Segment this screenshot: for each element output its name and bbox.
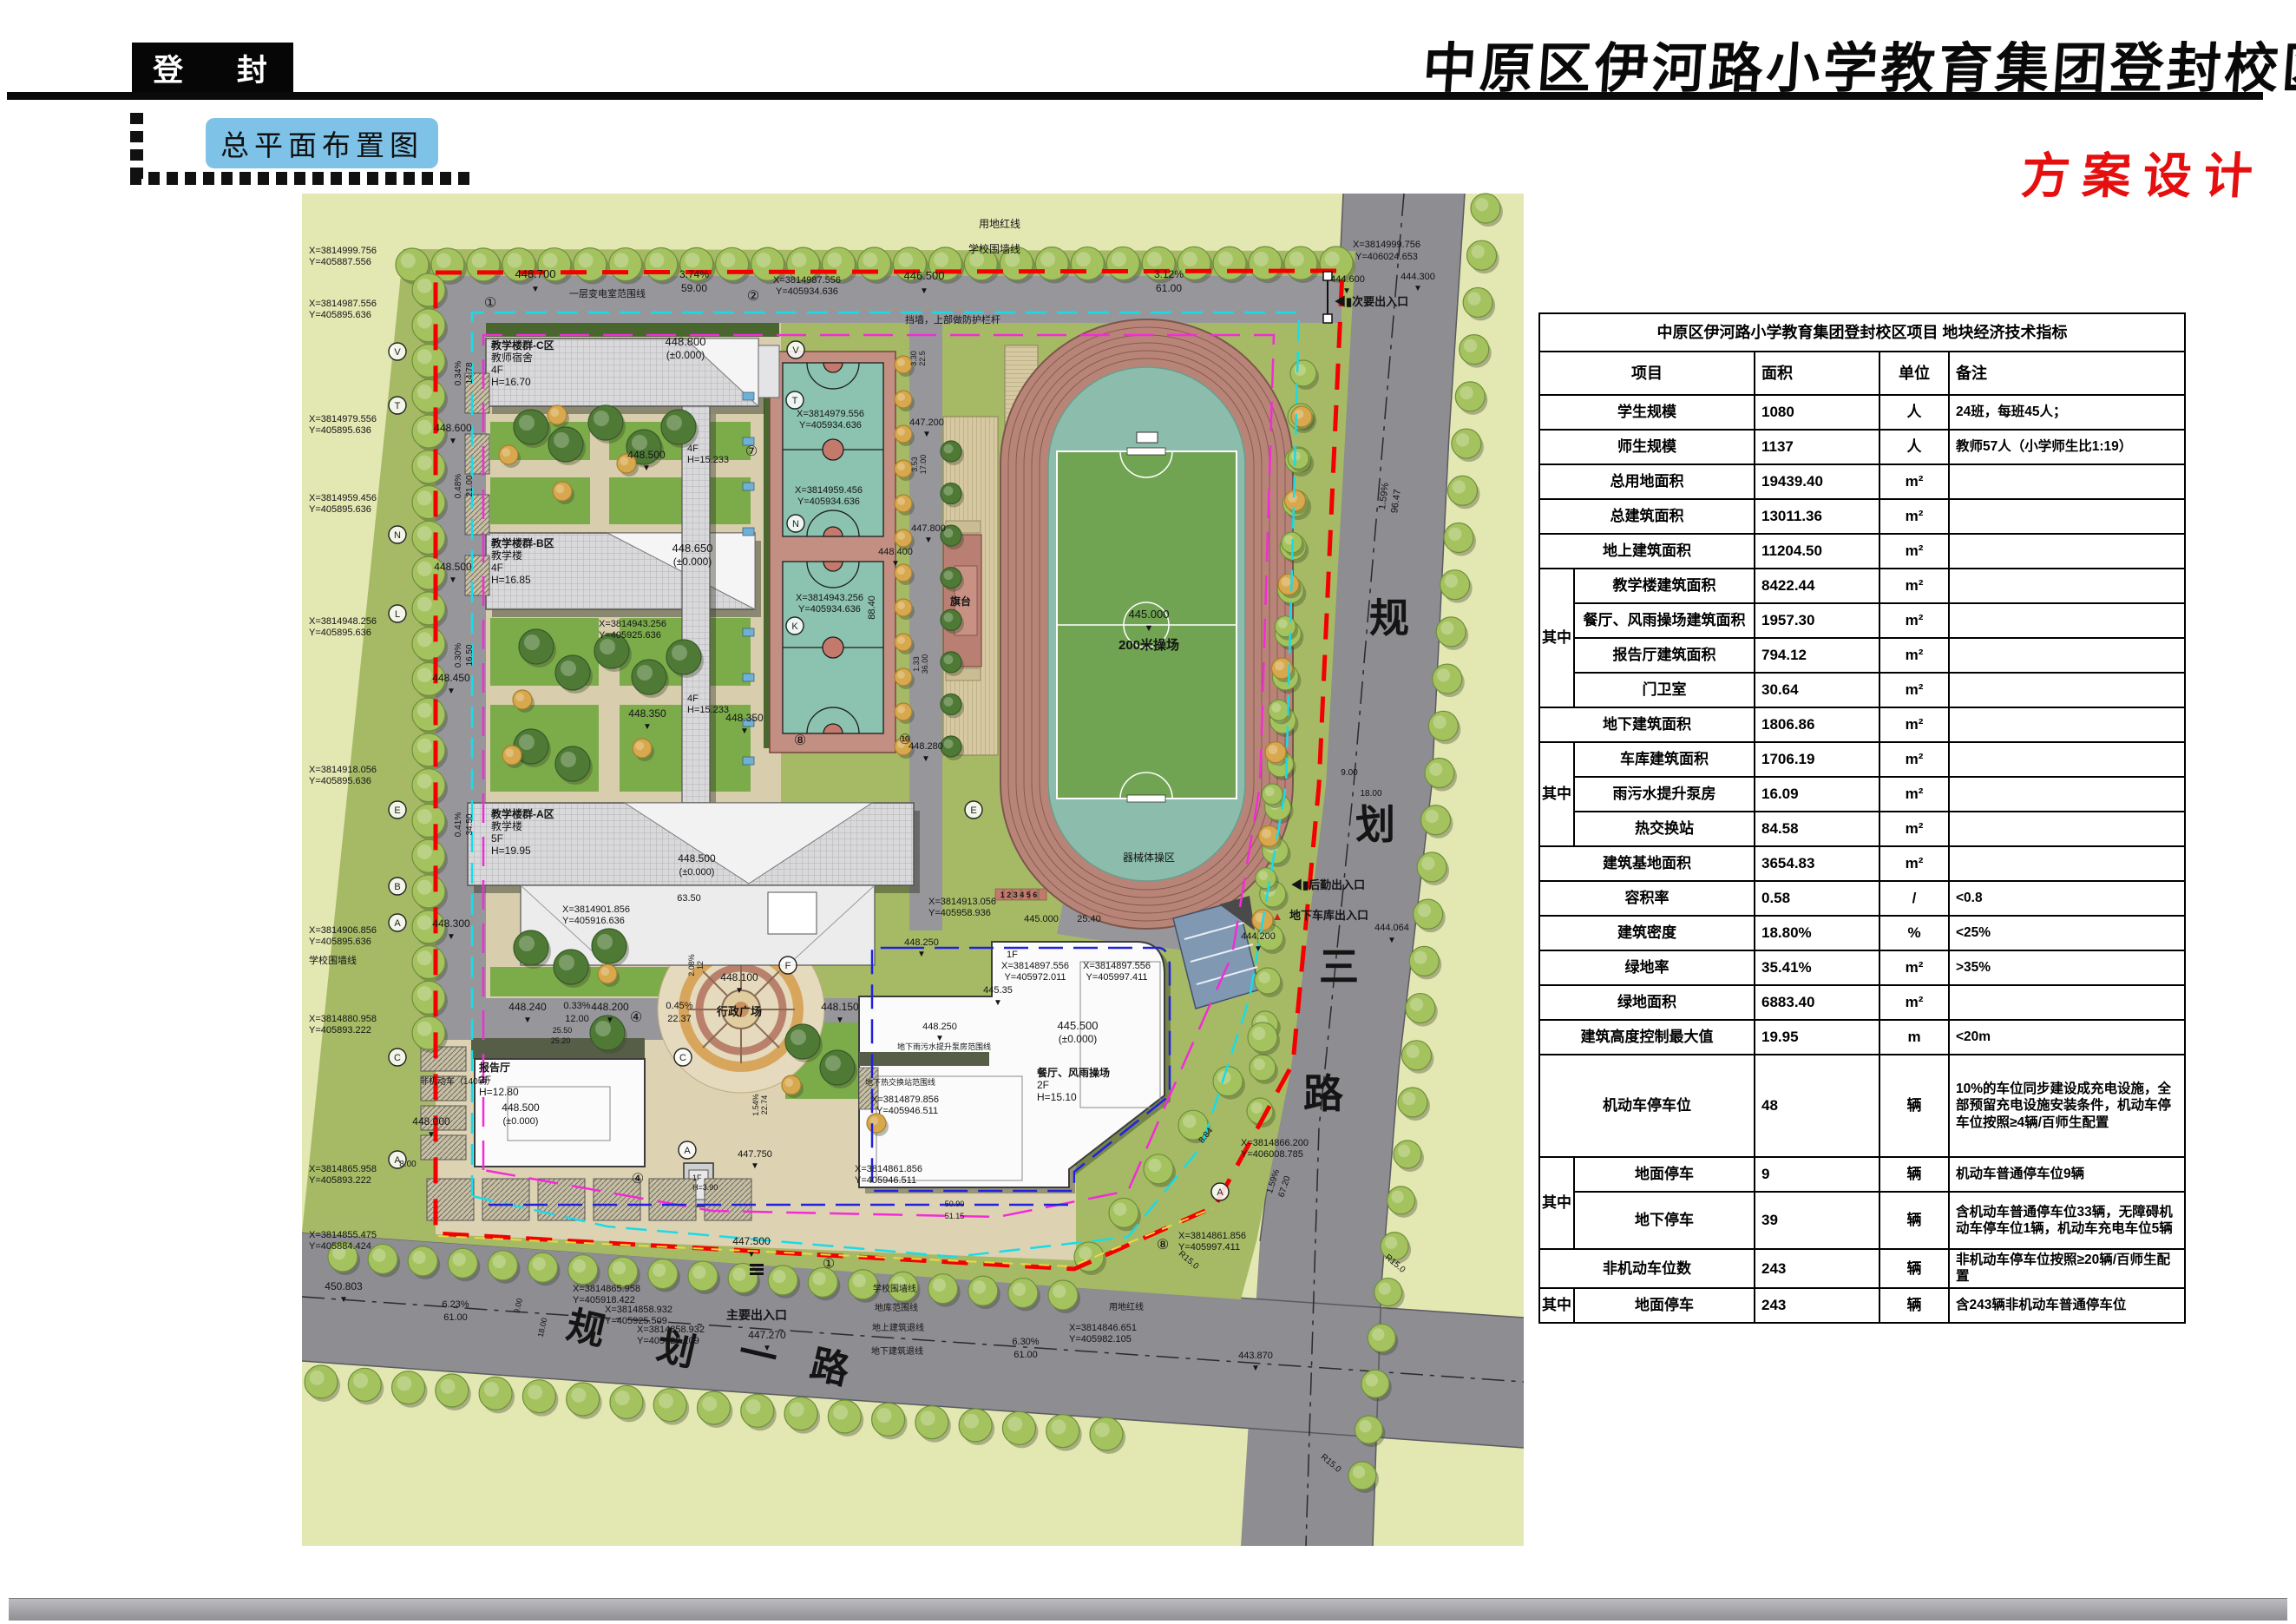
remark-cell: [1949, 707, 2185, 742]
table-row: 建筑基地面积3654.83m²: [1539, 846, 2185, 881]
table-row: 容积率0.58/<0.8: [1539, 881, 2185, 916]
plan-annotation: Y=405997.411: [1086, 972, 1147, 983]
value-cell: 84.58: [1755, 812, 1879, 846]
plan-annotation: X=3814987.556: [773, 275, 841, 286]
plan-annotation: 教学楼群-A区: [490, 807, 554, 820]
value-cell: 19439.40: [1755, 464, 1879, 499]
value-cell: 16.09: [1755, 777, 1879, 812]
plan-annotation: X=3814943.256: [796, 593, 863, 603]
table-row: 绿地率35.41%m²>35%: [1539, 950, 2185, 985]
unit-cell: m²: [1879, 569, 1949, 603]
plan-annotation: 448.150: [821, 1001, 859, 1013]
grid-bubble-label: E: [970, 805, 976, 816]
plan-annotation: ▼: [751, 1161, 759, 1171]
plan-annotation: X=3814979.556: [797, 409, 864, 419]
value-cell: 1080: [1755, 395, 1879, 430]
plan-annotation: 3.12%: [1154, 268, 1184, 280]
plan-annotation: 445.000: [1129, 608, 1170, 621]
plan-annotation: 448.350: [628, 707, 666, 720]
plan-annotation: 0.30%: [454, 643, 463, 667]
item-cell: 机动车停车位: [1539, 1055, 1755, 1157]
unit-cell: m²: [1879, 464, 1949, 499]
item-cell: 地下建筑面积: [1539, 707, 1755, 742]
plan-annotation: 448.600: [434, 422, 472, 434]
footer-shadow-bar: [9, 1598, 2287, 1621]
plan-annotation: 25.40: [1077, 914, 1101, 924]
plan-annotation: ▼: [747, 1250, 756, 1259]
table-row: 绿地面积6883.40m²: [1539, 985, 2185, 1020]
plan-annotation: 448.240: [508, 1001, 547, 1013]
plan-annotation: X=3814999.756: [309, 246, 377, 256]
plan-annotation: ▼: [642, 464, 651, 473]
plan-annotation: ▼: [531, 285, 540, 294]
plan-annotation: ▼: [1414, 284, 1422, 293]
plan-annotation: ④: [632, 1172, 644, 1187]
item-cell: 报告厅建筑面积: [1574, 638, 1755, 673]
plan-annotation: 餐厅、风雨操场: [1037, 1066, 1110, 1079]
remark-cell: [1949, 742, 2185, 777]
remark-cell: [1949, 812, 2185, 846]
plan-annotation: Y=405997.411: [1178, 1242, 1240, 1253]
item-cell: 总用地面积: [1539, 464, 1755, 499]
plan-annotation: X=3814906.856: [309, 925, 377, 936]
item-cell: 门卫室: [1574, 673, 1755, 707]
plan-annotation: 规: [1369, 595, 1409, 641]
table-row: 其中地面停车243辆含243辆非机动车普通停车位: [1539, 1288, 2185, 1323]
item-cell: 地上建筑面积: [1539, 534, 1755, 569]
table-row: 报告厅建筑面积794.12m²: [1539, 638, 2185, 673]
city-tab-label: 登 封: [153, 46, 290, 90]
plan-annotation: 448.100: [720, 971, 758, 983]
unit-cell: m²: [1879, 812, 1949, 846]
item-cell: 学生规模: [1539, 395, 1755, 430]
plan-annotation: 445.500: [1058, 1019, 1099, 1032]
unit-cell: /: [1879, 881, 1949, 916]
plan-annotation: ▼: [447, 932, 456, 942]
plan-annotation: H=16.85: [491, 574, 531, 586]
plan-annotation: 444.600: [1330, 274, 1365, 285]
plan-annotation: 教学楼: [491, 549, 522, 562]
main-gate: [750, 1264, 764, 1275]
value-cell: 6883.40: [1755, 985, 1879, 1020]
plan-annotation: 1 2 3 4 5 6: [1000, 891, 1038, 899]
unit-cell: m²: [1879, 707, 1949, 742]
grid-bubble-label: A: [394, 918, 401, 929]
plan-annotation: X=3814861.856: [855, 1164, 922, 1174]
plan-annotation: 3.30: [909, 351, 918, 366]
grid-bubble-label: A: [1217, 1187, 1223, 1198]
plan-annotation: X=3814943.256: [599, 619, 666, 629]
plan-annotation: 地库范围线: [875, 1302, 918, 1313]
plan-annotation: Y=405958.936: [928, 908, 991, 918]
grid-bubble-label: A: [684, 1146, 691, 1156]
plan-annotation: 444.064: [1374, 923, 1409, 933]
plan-annotation: H=15.10: [1037, 1091, 1077, 1103]
table-row: 餐厅、风雨操场建筑面积1957.30m²: [1539, 603, 2185, 638]
item-cell: 绿地率: [1539, 950, 1755, 985]
group-cell: 其中: [1539, 1157, 1574, 1249]
plan-annotation: Y=405893.222: [309, 1025, 371, 1036]
plan-annotation: 448.280: [909, 741, 943, 752]
plan-annotation: ②: [747, 289, 759, 304]
plan-annotation: 5F: [491, 832, 503, 845]
plan-annotation: 444.200: [1241, 931, 1276, 942]
item-cell: 餐厅、风雨操场建筑面积: [1574, 603, 1755, 638]
plan-annotation: 一层变电室范围线: [569, 287, 646, 299]
value-cell: 3654.83: [1755, 846, 1879, 881]
item-cell: 容积率: [1539, 881, 1755, 916]
table-row: 雨污水提升泵房16.09m²: [1539, 777, 2185, 812]
plan-annotation: 443.870: [1238, 1351, 1273, 1361]
plan-annotation: X=3814918.056: [309, 765, 377, 775]
plan-annotation: 21.00: [465, 475, 475, 496]
unit-cell: m: [1879, 1020, 1949, 1055]
plan-annotation: 16.50: [465, 644, 475, 666]
plan-annotation: H=16.70: [491, 376, 531, 388]
plan-annotation: 25.50: [553, 1026, 573, 1035]
value-cell: 0.58: [1755, 881, 1879, 916]
plan-annotation: 22.37: [667, 1014, 692, 1024]
plan-annotation: 挡墙，上部做防护栏杆: [905, 313, 1000, 325]
plan-annotation: 51.15: [945, 1212, 965, 1220]
value-cell: 243: [1755, 1288, 1879, 1323]
plan-annotation: ▼: [891, 559, 900, 569]
table-title: 中原区伊河路小学教育集团登封校区项目 地块经济技术指标: [1539, 313, 2185, 352]
plan-annotation: 9.00: [1341, 768, 1358, 778]
remark-cell: <25%: [1949, 916, 2185, 950]
plan-annotation: 34.50: [465, 813, 475, 835]
plan-annotation: 448.800: [666, 335, 706, 348]
remark-cell: [1949, 603, 2185, 638]
plan-annotation: X=3814897.556: [1001, 961, 1069, 971]
table-row: 建筑密度18.80%%<25%: [1539, 916, 2185, 950]
plan-title-label: 总平面布置图: [220, 122, 423, 164]
unit-cell: m²: [1879, 603, 1949, 638]
group-cell: 其中: [1539, 569, 1574, 707]
value-cell: 19.95: [1755, 1020, 1879, 1055]
plan-annotation: 18.00: [1360, 789, 1381, 799]
plan-annotation: 3.53: [910, 457, 919, 472]
plan-annotation: ▲: [1272, 910, 1283, 923]
plan-annotation: ▼: [740, 727, 749, 736]
plan-annotation: Y=406024.653: [1355, 252, 1418, 262]
plan-annotation: X=3814866.200: [1241, 1138, 1309, 1148]
grid-bubble-label: F: [785, 961, 791, 971]
plan-annotation: X=3814987.556: [309, 299, 377, 309]
grid-bubble-label: E: [394, 805, 400, 816]
plan-annotation: H=12.80: [479, 1086, 519, 1098]
plan-annotation: X=3814879.856: [871, 1095, 939, 1105]
plan-annotation: 0.41%: [454, 812, 463, 837]
table-row: 建筑高度控制最大值19.95m<20m: [1539, 1020, 2185, 1055]
plan-annotation: 448.650: [672, 542, 713, 555]
plan-annotation: 划: [1355, 802, 1395, 847]
unit-cell: m²: [1879, 985, 1949, 1020]
plan-annotation: 0.48%: [454, 474, 463, 498]
plan-annotation: 0.45%: [666, 1001, 692, 1011]
remark-cell: <20m: [1949, 1020, 2185, 1055]
plan-annotation: H=3.90: [692, 1183, 718, 1192]
plan-annotation: 8.00: [399, 1160, 417, 1169]
item-cell: 地面停车: [1574, 1288, 1755, 1323]
unit-cell: 人: [1879, 430, 1949, 464]
plan-annotation: 448.500: [502, 1101, 540, 1114]
plan-annotation: ④: [630, 1010, 642, 1025]
plan-annotation: 63.50: [677, 893, 701, 904]
plan-annotation: Y=405916.636: [562, 916, 625, 926]
table-row: 门卫室30.64m²: [1539, 673, 2185, 707]
plan-annotation: X=3814897.556: [1083, 961, 1151, 971]
table-row: 热交换站84.58m²: [1539, 812, 2185, 846]
plan-annotation: 用地红线: [979, 217, 1020, 230]
plan-annotation: 路: [1303, 1071, 1344, 1116]
item-cell: 热交换站: [1574, 812, 1755, 846]
grid-bubble-label: L: [395, 609, 400, 620]
plan-annotation: 地上建筑退线: [872, 1322, 924, 1333]
plan-annotation: Y=405934.636: [798, 604, 861, 615]
plan-annotation: 59.00: [681, 282, 707, 294]
unit-cell: %: [1879, 916, 1949, 950]
unit-cell: 辆: [1879, 1249, 1949, 1288]
plan-annotation: Y=405895.636: [309, 504, 371, 515]
unit-cell: 辆: [1879, 1192, 1949, 1249]
plan-annotation: 地下雨污水提升泵房范围线: [897, 1042, 991, 1051]
plan-annotation: X=3814979.556: [309, 414, 377, 424]
plan-annotation: 448.250: [904, 937, 939, 948]
plan-annotation: ①: [823, 1257, 835, 1272]
plan-annotation: Y=405895.636: [309, 937, 371, 947]
value-cell: 1806.86: [1755, 707, 1879, 742]
plan-annotation: 0.33%: [563, 1001, 590, 1011]
plan-annotation: (±0.000): [503, 1116, 539, 1127]
plan-annotation: 地下热交换站范围线: [865, 1077, 935, 1087]
group-cell: 其中: [1539, 1288, 1574, 1323]
plan-annotation: 50.90: [945, 1200, 965, 1208]
unit-cell: 辆: [1879, 1157, 1949, 1192]
remark-cell: [1949, 777, 2185, 812]
value-cell: 8422.44: [1755, 569, 1879, 603]
remark-cell: <0.8: [1949, 881, 2185, 916]
plan-annotation: 行政广场: [716, 1005, 762, 1018]
plan-annotation: 446.500: [904, 269, 945, 282]
value-cell: 1137: [1755, 430, 1879, 464]
remark-cell: [1949, 464, 2185, 499]
table-row: 总建筑面积13011.36m²: [1539, 499, 2185, 534]
lecture-hall: [471, 1038, 645, 1167]
plan-annotation: ▼: [922, 430, 931, 439]
remark-cell: 24班，每班45人；: [1949, 395, 2185, 430]
city-tab: 登 封: [132, 43, 293, 93]
plan-annotation: 6.30%: [1012, 1337, 1039, 1347]
plan-annotation: Y=405895.636: [309, 628, 371, 638]
plan-annotation: Y=405925.636: [599, 630, 661, 641]
grid-bubble-label: C: [394, 1053, 401, 1063]
value-cell: 48: [1755, 1055, 1879, 1157]
value-cell: 1706.19: [1755, 742, 1879, 777]
unit-cell: m²: [1879, 638, 1949, 673]
plan-annotation: 61.00: [443, 1312, 468, 1323]
plan-annotation: 447.500: [732, 1235, 771, 1247]
remark-cell: 教师57人（小学师生比1:19）: [1949, 430, 2185, 464]
plan-annotation: Y=405972.011: [1004, 972, 1066, 983]
unit-cell: m²: [1879, 950, 1949, 985]
plan-annotation: X=3814948.256: [309, 616, 377, 627]
remark-cell: 10%的车位同步建设成充电设施，全部预留充电设施安装条件，机动车停车位按照≥4辆…: [1949, 1055, 2185, 1157]
value-cell: 1957.30: [1755, 603, 1879, 638]
plan-annotation: Y=405895.636: [309, 776, 371, 786]
table-row: 机动车停车位48辆10%的车位同步建设成充电设施，全部预留充电设施安装条件，机动…: [1539, 1055, 2185, 1157]
plan-annotation: Y=405895.636: [309, 425, 371, 436]
plan-annotation: 448.500: [627, 449, 666, 461]
plan-annotation: X=3814846.651: [1069, 1323, 1137, 1333]
plan-annotation: 6.23%: [442, 1299, 469, 1310]
plan-annotation: ▼: [606, 1016, 614, 1025]
plan-annotation: 14.78: [465, 362, 475, 384]
project-title: 中原区伊河路小学教育集团登封校区: [1420, 24, 2259, 102]
remark-cell: [1949, 569, 2185, 603]
table-row: 其中教学楼建筑面积8422.44m²: [1539, 569, 2185, 603]
group-cell: 其中: [1539, 742, 1574, 846]
plan-annotation: 448.400: [878, 547, 913, 557]
value-cell: 18.80%: [1755, 916, 1879, 950]
value-cell: 39: [1755, 1192, 1879, 1249]
plan-annotation: ▼: [339, 1295, 348, 1305]
plan-annotation: Y=405982.105: [1069, 1334, 1132, 1345]
plan-annotation: 448.300: [432, 917, 470, 930]
unit-cell: 辆: [1879, 1288, 1949, 1323]
grid-bubble-label: B: [394, 882, 400, 892]
plan-annotation: X=3814901.856: [562, 904, 630, 915]
grid-bubble-label: C: [679, 1053, 686, 1063]
plan-annotation: ▼: [427, 1130, 436, 1140]
plan-annotation: X=3814913.056: [928, 897, 996, 907]
item-cell: 非机动车位数: [1539, 1249, 1755, 1288]
plan-annotation: 地下车库出入口: [1289, 909, 1368, 922]
plan-annotation: 447.800: [911, 523, 946, 534]
drawing-sheet: 登 封 总平面布置图 中原区伊河路小学教育集团登封校区 方案设计: [0, 0, 2296, 1624]
plan-annotation: 4F: [491, 364, 503, 376]
value-cell: 13011.36: [1755, 499, 1879, 534]
plan-annotation: 2.08%: [687, 954, 696, 976]
plan-annotation: 4F: [687, 694, 699, 704]
plan-annotation: X=3814999.756: [1353, 240, 1420, 250]
remark-cell: 非机动车停车位按照≥20辆/百师生配置: [1949, 1249, 2185, 1288]
plan-annotation: 器械体操区: [1123, 851, 1175, 864]
plan-annotation: ▼: [1387, 936, 1396, 945]
plan-annotation: 22.74: [760, 1095, 769, 1115]
plan-annotation: (±0.000): [1059, 1033, 1098, 1045]
plan-annotation: ▼: [735, 986, 744, 996]
plan-annotation: 报告厅: [479, 1061, 510, 1074]
plan-annotation: 448.350: [725, 712, 764, 724]
plan-annotation: X=3814865.958: [573, 1284, 640, 1294]
plan-annotation: 448.000: [412, 1115, 450, 1128]
plan-annotation: 学校围墙线: [968, 242, 1020, 255]
item-cell: 绿地面积: [1539, 985, 1755, 1020]
plan-annotation: 三: [1319, 944, 1359, 990]
plan-annotation: Y=405884.424: [309, 1241, 371, 1252]
value-cell: 30.64: [1755, 673, 1879, 707]
plan-annotation: 教学楼群-C区: [490, 339, 554, 352]
plan-annotation: Y=405946.511: [876, 1106, 938, 1116]
plan-annotation: 88.40: [867, 595, 877, 620]
plan-annotation: 448.200: [591, 1001, 629, 1013]
plan-annotation: X=3814855.475: [309, 1230, 377, 1240]
plan-annotation: 17.00: [919, 455, 928, 475]
plan-annotation: 1.54%: [751, 1094, 760, 1116]
site-plan-map: VTNLEBACAVTNKEFCAA 用地红线学校围墙线448.700▼3.74…: [302, 169, 1524, 1546]
plan-annotation: 447.200: [909, 418, 944, 428]
plan-annotation: 学校围墙线: [873, 1283, 916, 1294]
plan-annotation: X=3814959.456: [309, 493, 377, 503]
plan-annotation: ①: [484, 296, 496, 311]
plan-annotation: 61.00: [1156, 282, 1182, 294]
plan-annotation: Y=405887.556: [309, 257, 371, 267]
plan-annotation: 地下建筑退线: [871, 1345, 923, 1357]
grid-bubble-label: T: [792, 396, 798, 406]
plan-annotation: ▼: [836, 1016, 844, 1025]
plan-annotation: (±0.000): [666, 349, 705, 361]
plan-annotation: 1.33: [912, 656, 921, 672]
remark-cell: [1949, 673, 2185, 707]
remark-cell: [1949, 638, 2185, 673]
plan-annotation: H=15.233: [687, 455, 729, 465]
plan-annotation: Y=405934.636: [776, 286, 838, 297]
table-row: 非机动车位数243辆非机动车停车位按照≥20辆/百师生配置: [1539, 1249, 2185, 1288]
item-cell: 地下停车: [1574, 1192, 1755, 1249]
plan-annotation: 25.20: [551, 1036, 571, 1045]
unit-cell: 人: [1879, 395, 1949, 430]
plan-annotation: ▼: [917, 950, 926, 959]
plan-annotation: ▼: [920, 286, 928, 296]
plan-annotation: ▼: [449, 575, 457, 585]
remark-cell: [1949, 985, 2185, 1020]
indicator-table-wrap: 中原区伊河路小学教育集团登封校区项目 地块经济技术指标项目面积单位备注学生规模1…: [1538, 312, 2184, 1324]
plan-annotation: 12.00: [565, 1014, 589, 1024]
plan-annotation: 非机动车（140辆）: [420, 1075, 495, 1087]
remark-cell: 含机动车普通停车位33辆，无障碍机动车停车位1辆，机动车充电车位5辆: [1949, 1192, 2185, 1249]
plan-annotation: 教师宿舍: [491, 351, 533, 364]
grid-bubble-label: K: [791, 621, 798, 632]
value-cell: 11204.50: [1755, 534, 1879, 569]
plan-annotation: 学校围墙线: [309, 954, 357, 966]
plan-annotation: (±0.000): [679, 867, 715, 878]
plan-annotation: Y=405893.222: [309, 1175, 371, 1186]
plan-annotation: ⑦: [745, 444, 758, 459]
grid-bubble-label: V: [792, 345, 799, 356]
col-header: 备注: [1949, 352, 2185, 395]
plan-annotation: (±0.000): [673, 556, 712, 568]
remark-cell: [1949, 846, 2185, 881]
design-phase-label: 方案设计: [2019, 137, 2267, 207]
plan-annotation: X=3814865.958: [309, 1164, 377, 1174]
table-row: 其中车库建筑面积1706.19m²: [1539, 742, 2185, 777]
plan-annotation: Y=405934.636: [797, 496, 860, 507]
plan-annotation: 教学楼: [491, 819, 522, 832]
item-cell: 师生规模: [1539, 430, 1755, 464]
plan-annotation: H=19.95: [491, 845, 531, 857]
grid-bubble-label: T: [395, 401, 401, 411]
plan-annotation: 2F: [1037, 1079, 1049, 1091]
table-row: 地上建筑面积11204.50m²: [1539, 534, 2185, 569]
remark-cell: >35%: [1949, 950, 2185, 985]
plan-annotation: 448.700: [515, 267, 556, 280]
item-cell: 建筑基地面积: [1539, 846, 1755, 881]
plan-annotation: X=3814861.856: [1178, 1231, 1246, 1241]
unit-cell: m²: [1879, 846, 1949, 881]
table-row: 总用地面积19439.40m²: [1539, 464, 2185, 499]
value-cell: 243: [1755, 1249, 1879, 1288]
